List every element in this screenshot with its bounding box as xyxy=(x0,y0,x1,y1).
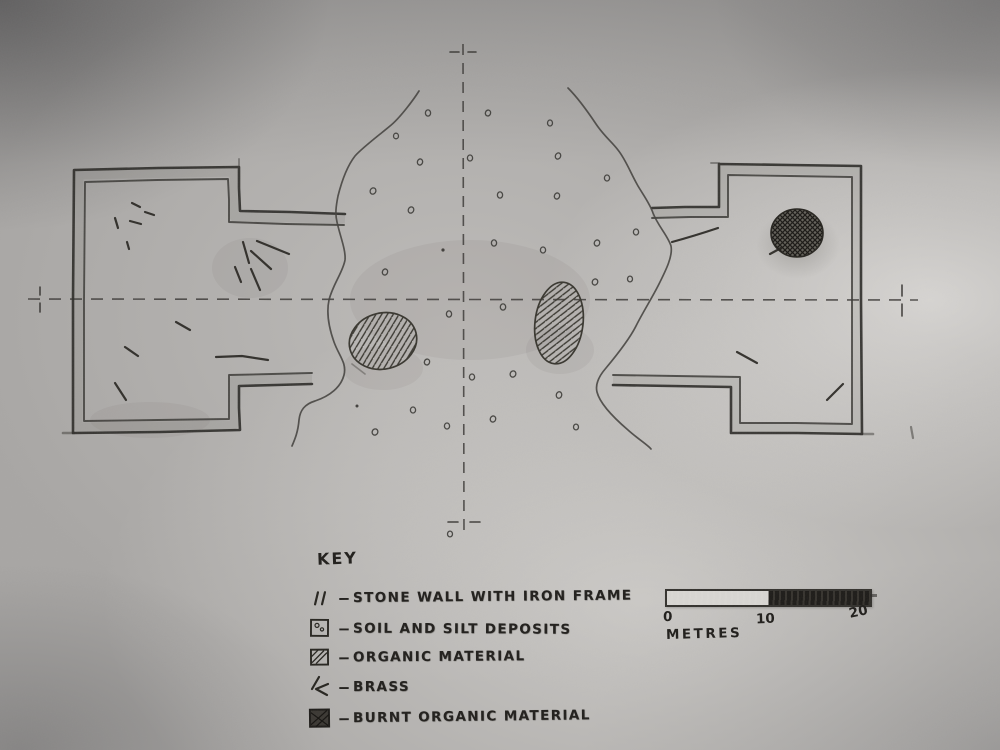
key-item-label: ORGANIC MATERIAL xyxy=(353,648,526,665)
key-item-burnt-organic: – BURNT ORGANIC MATERIAL xyxy=(305,702,591,731)
key-item-label: BURNT ORGANIC MATERIAL xyxy=(353,707,591,726)
key-dash: – xyxy=(330,648,359,666)
key-dash: – xyxy=(330,678,359,696)
key-item-brass: – BRASS xyxy=(305,674,410,700)
scale-unit-label: METRES xyxy=(666,625,743,643)
key-dash: – xyxy=(330,589,359,607)
key-item-label: STONE WALL WITH IRON FRAME xyxy=(353,588,633,606)
pencil-site-plan-photo: KEY – STONE WALL WITH IRON FRAME – SOIL … xyxy=(0,0,1000,750)
left-chamber-walls xyxy=(63,159,345,433)
centerline-horizontal xyxy=(28,299,918,300)
key-item-stone-wall: – STONE WALL WITH IRON FRAME xyxy=(305,583,633,612)
deposit-boundary-right xyxy=(568,88,671,449)
key-dash: – xyxy=(330,619,359,637)
scale-bar-graphic xyxy=(665,589,872,607)
key-item-soil-silt: – SOIL AND SILT DEPOSITS xyxy=(305,615,572,642)
key-dash: – xyxy=(329,709,358,727)
key-item-label: SOIL AND SILT DEPOSITS xyxy=(353,621,572,638)
burnt-organic-deposit xyxy=(770,209,823,257)
graphite-smudges xyxy=(90,211,840,438)
key-item-organic: – ORGANIC MATERIAL xyxy=(305,643,526,671)
scale-tick-10: 10 xyxy=(756,611,775,628)
key-item-label: BRASS xyxy=(353,679,410,695)
scale-tick-0: 0 xyxy=(663,609,673,625)
scale-bar-overshoot xyxy=(870,594,877,597)
key-heading: KEY xyxy=(317,548,359,568)
